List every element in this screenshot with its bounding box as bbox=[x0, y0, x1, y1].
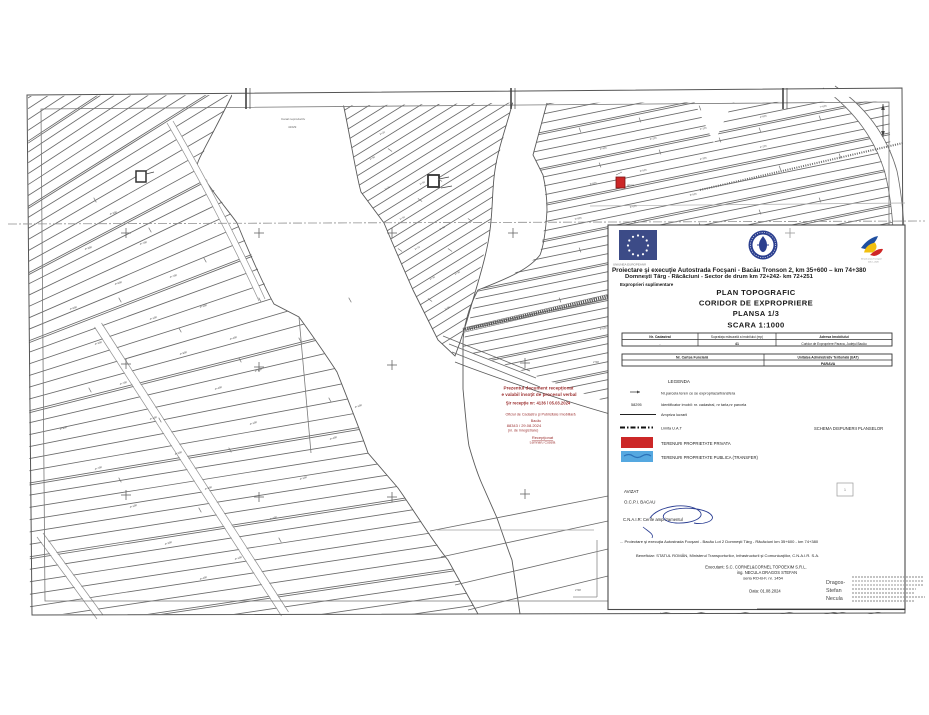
svg-text:Nr. Cartea Funciară: Nr. Cartea Funciară bbox=[676, 356, 708, 360]
svg-text:88343 / 29.08.2024: 88343 / 29.08.2024 bbox=[507, 423, 542, 428]
svg-text:TERENURI PROPRIETATE PRIVATA: TERENURI PROPRIETATE PRIVATA bbox=[661, 441, 731, 446]
svg-text:O.C.P.I. BACAU: O.C.P.I. BACAU bbox=[624, 500, 655, 505]
svg-text:Data: 01.08.2024: Data: 01.08.2024 bbox=[749, 589, 781, 594]
svg-text:LEGENDA: LEGENDA bbox=[668, 379, 691, 384]
svg-text:Proiectare şi execuţie Autostr: Proiectare şi execuţie Autostrada Focşan… bbox=[612, 267, 867, 274]
svg-text:PARAVA: PARAVA bbox=[821, 362, 836, 366]
svg-text:Adresa Imobilului: Adresa Imobilului bbox=[819, 335, 848, 339]
svg-text:41629: 41629 bbox=[288, 125, 297, 129]
svg-text:ing. NECULA DRAGOS STEFAN: ing. NECULA DRAGOS STEFAN bbox=[737, 570, 797, 575]
svg-text:2798: 2798 bbox=[575, 588, 581, 592]
svg-text:Beneficiar: STATUL ROMÂN, Mini: Beneficiar: STATUL ROMÂN, Ministerul Tra… bbox=[636, 553, 819, 558]
svg-text:Infrastructura Transport: Infrastructura Transport bbox=[861, 258, 882, 261]
svg-text:58295: 58295 bbox=[631, 403, 642, 407]
svg-text:Şir recepţie nr: 4136 / 05.0: Şir recepţie nr: 4136 / 05.03.2024 bbox=[506, 400, 571, 405]
svg-text:2798: 2798 bbox=[593, 360, 599, 364]
svg-text:... Proiectare şi execuţia Aut: ... Proiectare şi execuţia Autostrada Fo… bbox=[620, 539, 819, 544]
svg-text:Stefan: Stefan bbox=[826, 588, 842, 594]
svg-text:Necula: Necula bbox=[826, 596, 843, 602]
svg-text:Dragos-: Dragos- bbox=[826, 580, 845, 586]
svg-text:2014 - 2020: 2014 - 2020 bbox=[868, 262, 880, 264]
svg-text:Prezentul document recepţionat: Prezentul document recepţionat bbox=[504, 386, 574, 391]
svg-text:(nr. de înregistrare): (nr. de înregistrare) bbox=[508, 428, 539, 432]
svg-text:CORIDOR DE EXPROPRIERE: CORIDOR DE EXPROPRIERE bbox=[699, 299, 813, 308]
svg-text:Identificator imobil: nr. cada: Identificator imobil: nr. cadastral, nr … bbox=[661, 403, 747, 407]
svg-text:Oficiul de Cadastru şi Publici: Oficiul de Cadastru şi Publicitate Imobi… bbox=[505, 413, 576, 417]
svg-text:Nr. Cadastral: Nr. Cadastral bbox=[649, 335, 671, 339]
svg-text:SCHEMA DISPUNERII PLANSELOR: SCHEMA DISPUNERII PLANSELOR bbox=[814, 426, 883, 431]
svg-text:Exproprieri suplimentare: Exproprieri suplimentare bbox=[620, 282, 674, 287]
svg-text:Unitatea Administrativ Teritor: Unitatea Administrativ Teritorială (UAT) bbox=[797, 356, 858, 360]
svg-text:Suprafaţa măsurată a imobilulu: Suprafaţa măsurată a imobilului (mp) bbox=[711, 335, 763, 339]
svg-text:Coridor de Expropriere Parava,: Coridor de Expropriere Parava, Judeţul B… bbox=[801, 342, 866, 346]
svg-text:1: 1 bbox=[844, 488, 846, 492]
svg-text:Recepţionat: Recepţionat bbox=[532, 435, 554, 440]
svg-text:41: 41 bbox=[735, 342, 739, 346]
svg-text:seria RO-B-F, nr. 1454: seria RO-B-F, nr. 1454 bbox=[743, 576, 784, 581]
svg-text:Lemnaru Cosela: Lemnaru Cosela bbox=[530, 441, 556, 445]
svg-text:Nr.parcela teren ce se expropr: Nr.parcela teren ce se expropriaza/trans… bbox=[661, 392, 736, 396]
svg-text:Domneşti Târg - Răcăciuni - Se: Domneşti Târg - Răcăciuni - Sector de dr… bbox=[625, 274, 814, 280]
svg-text:Executant: S.C. CORNEL&CORNEL: Executant: S.C. CORNEL&CORNEL TOPOEXIM S… bbox=[705, 565, 806, 570]
svg-text:PLAN TOPOGRAFIC: PLAN TOPOGRAFIC bbox=[716, 288, 795, 297]
svg-text:UNIUNEA EUROPEANĂ: UNIUNEA EUROPEANĂ bbox=[613, 263, 646, 267]
svg-text:prima: prima bbox=[627, 183, 634, 187]
svg-text:C.N.A.I.R: Cerife amprizamentu: C.N.A.I.R: Cerife amprizamentul bbox=[623, 517, 683, 522]
svg-text:SCARA 1:1000: SCARA 1:1000 bbox=[727, 321, 784, 330]
svg-text:TERENURI PROPRIETATE PUBLICA (: TERENURI PROPRIETATE PUBLICA (TRANSFER) bbox=[661, 455, 758, 460]
svg-text:AVIZAT: AVIZAT bbox=[624, 489, 639, 494]
svg-text:e valabil însoţit de procesul: e valabil însoţit de procesul verbal bbox=[501, 392, 576, 397]
svg-text:Canal neproductiv: Canal neproductiv bbox=[281, 117, 306, 121]
svg-text:Limita U.A.T: Limita U.A.T bbox=[661, 427, 683, 431]
svg-text:Ampriza lucrarii: Ampriza lucrarii bbox=[661, 413, 687, 417]
svg-text:PLANSA 1/3: PLANSA 1/3 bbox=[733, 309, 779, 318]
